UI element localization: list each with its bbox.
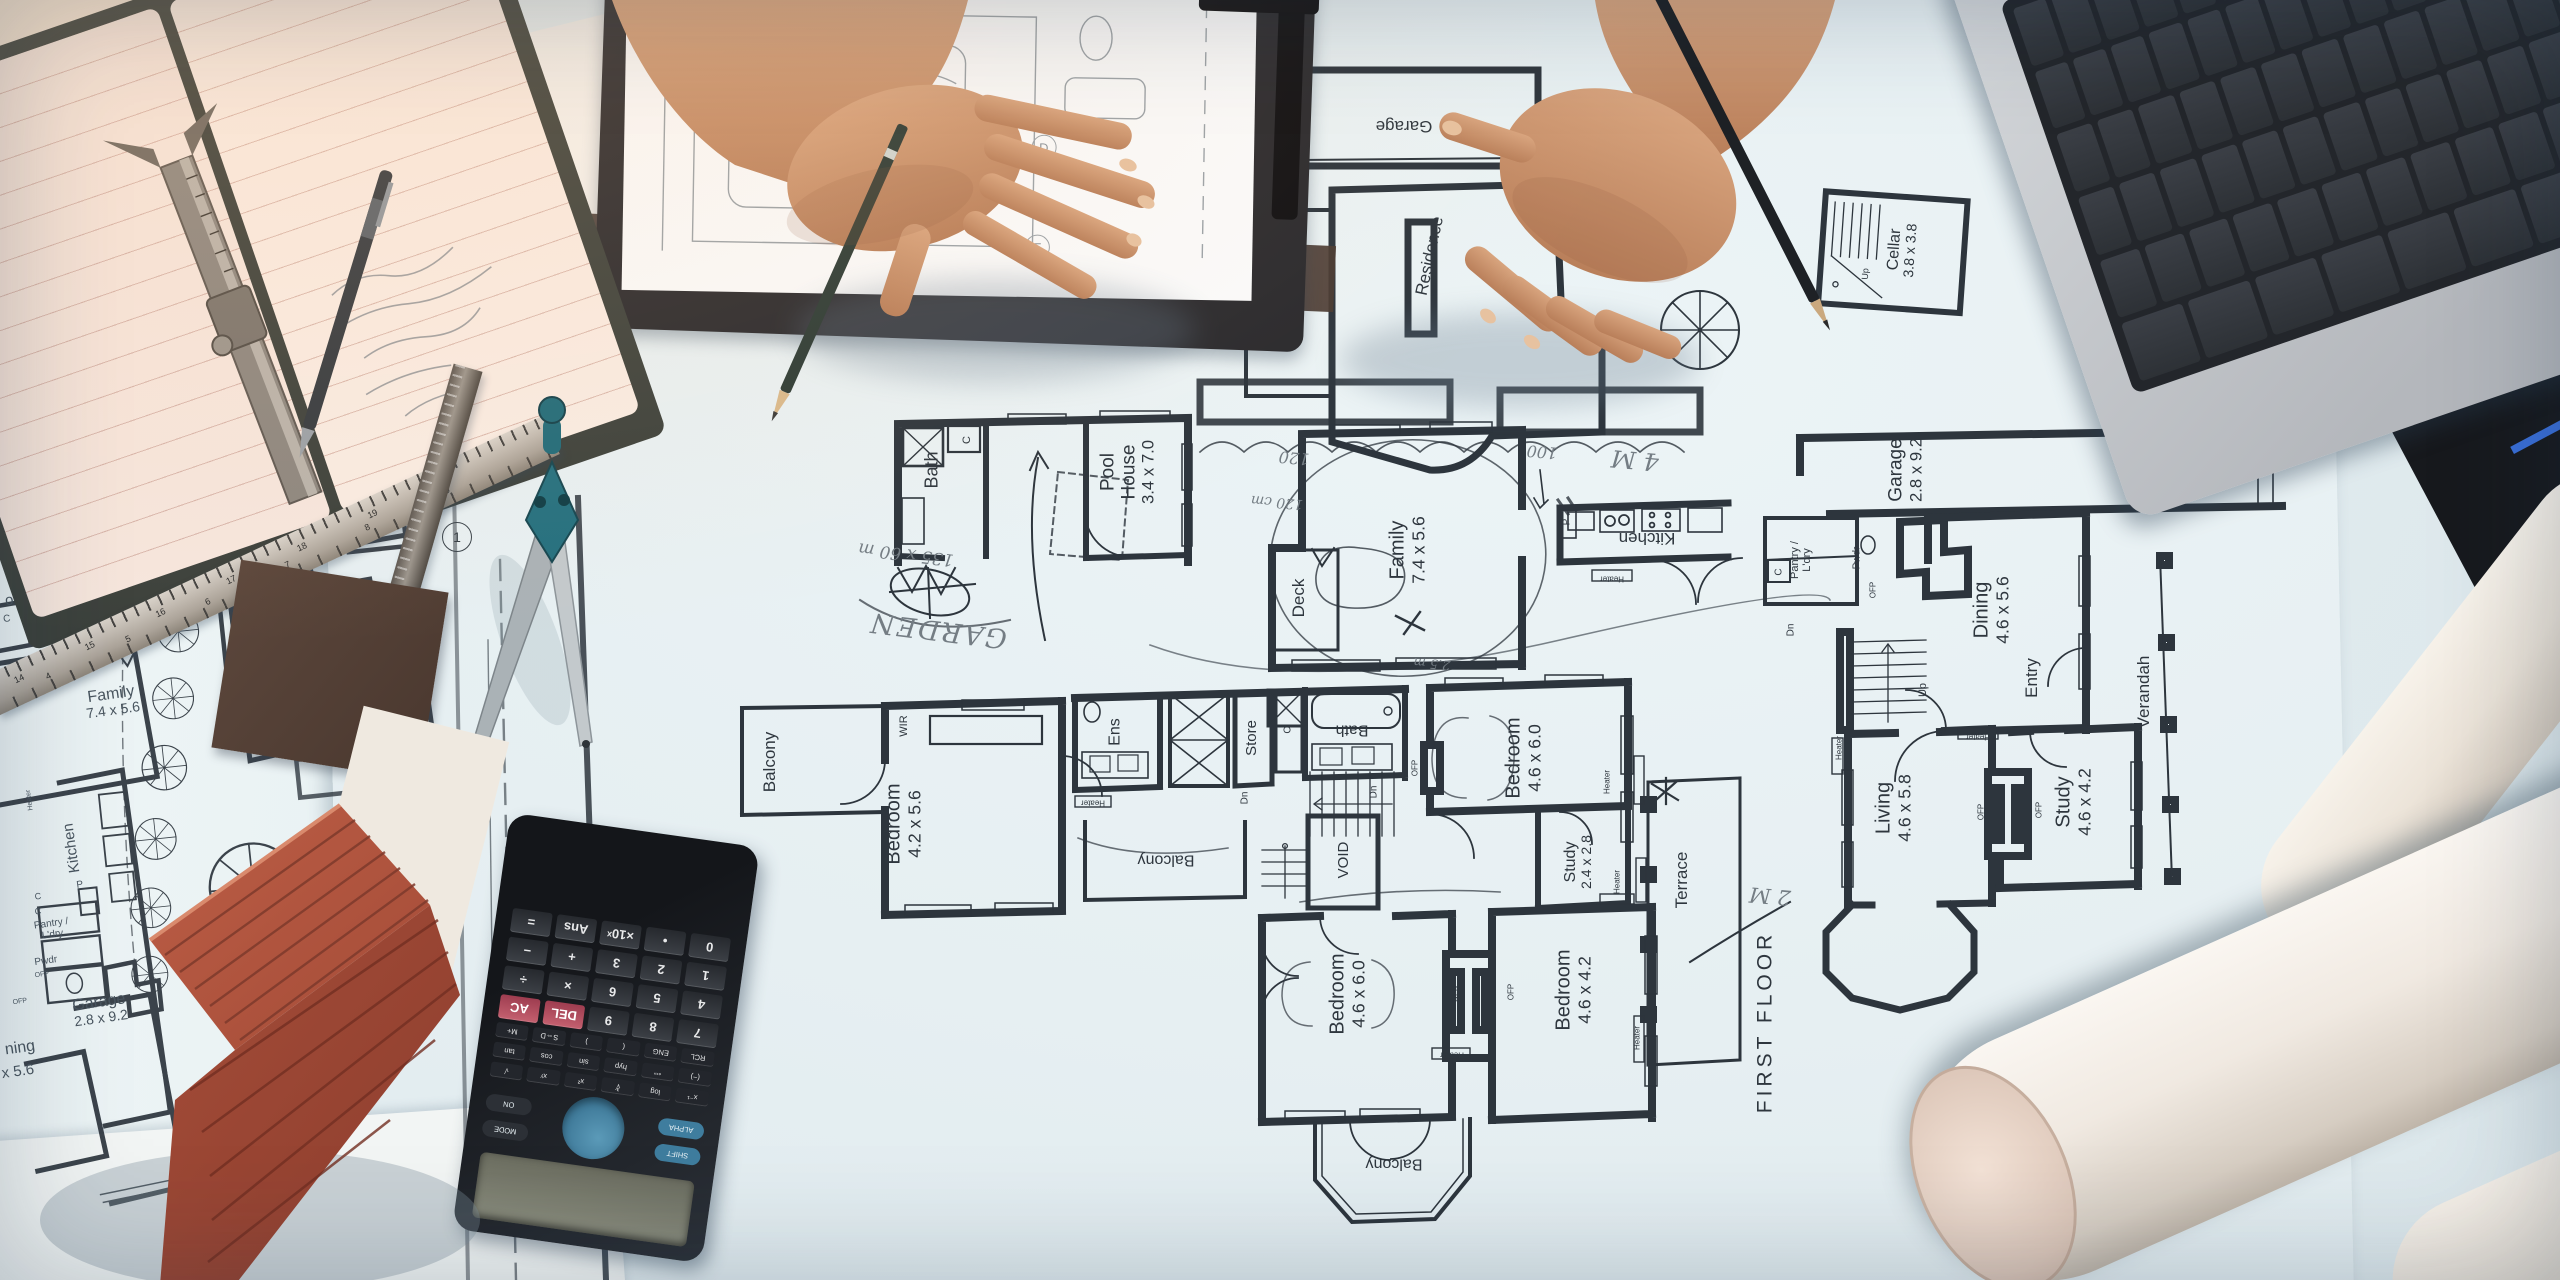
hands-overlay <box>0 0 2560 1280</box>
right-hand <box>1436 0 1835 367</box>
photo-scene: PoolHouse3.4 x 7.0 Bath C Family7.4 x 5.… <box>0 0 2560 1280</box>
